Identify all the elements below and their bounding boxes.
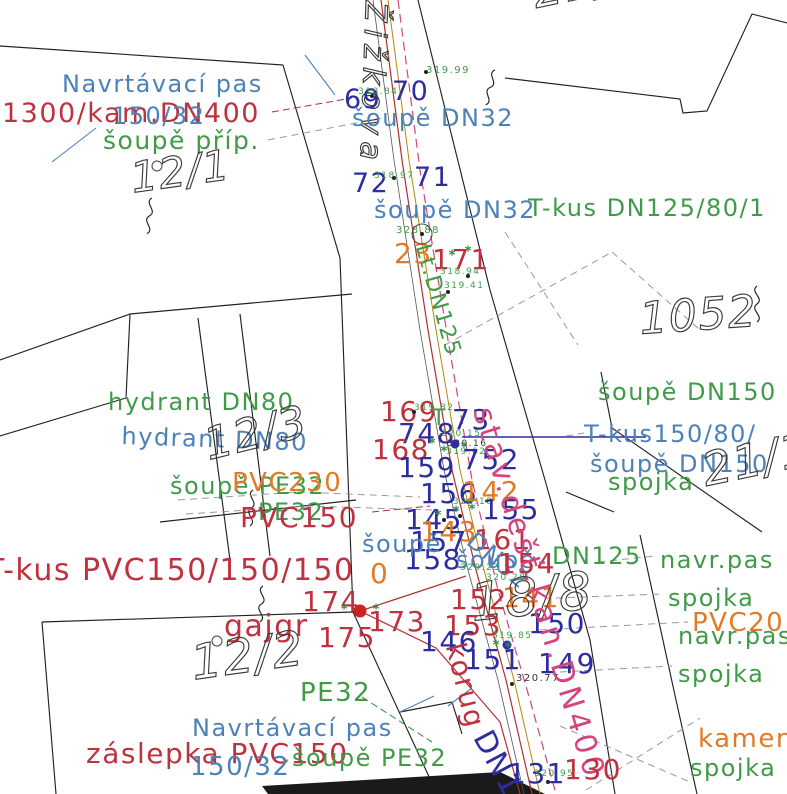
map-point-tick: * [449, 250, 456, 263]
map-point-dot-black [412, 410, 416, 414]
map-point-tick: * [461, 442, 468, 455]
map-point-dot-black [442, 518, 446, 522]
map-point-ring-sm [212, 636, 223, 647]
map-point-tick: * [505, 642, 512, 655]
map-point-dot-blue [451, 440, 460, 449]
map-point-dot-black [546, 780, 550, 784]
map-point-tick: * [441, 446, 448, 459]
map-point-tick: * [429, 438, 436, 451]
map-point-dot-black [446, 290, 450, 294]
map-point-tick: * [435, 510, 442, 523]
map-point-tick: * [469, 504, 476, 517]
map-point-ring-sm [152, 161, 163, 172]
map-point-dot-red [354, 605, 367, 618]
points-layer: ************ [0, 0, 787, 794]
map-point-dot-black [392, 176, 396, 180]
map-point-dot-black [466, 274, 470, 278]
map-point-dot-black [370, 94, 374, 98]
map-point-dot-black [420, 232, 424, 236]
map-point-tick: * [341, 604, 348, 617]
map-point-tick: * [493, 640, 500, 653]
map-point-tick: * [373, 604, 380, 617]
map-point-dot-black [424, 70, 428, 74]
map-point-tick: * [465, 246, 472, 259]
map-point-dot-black [510, 682, 514, 686]
map-point-tick: * [453, 506, 460, 519]
map-canvas: Navrtávací pas1300/kam.DN400150/32šoupě … [0, 0, 787, 794]
